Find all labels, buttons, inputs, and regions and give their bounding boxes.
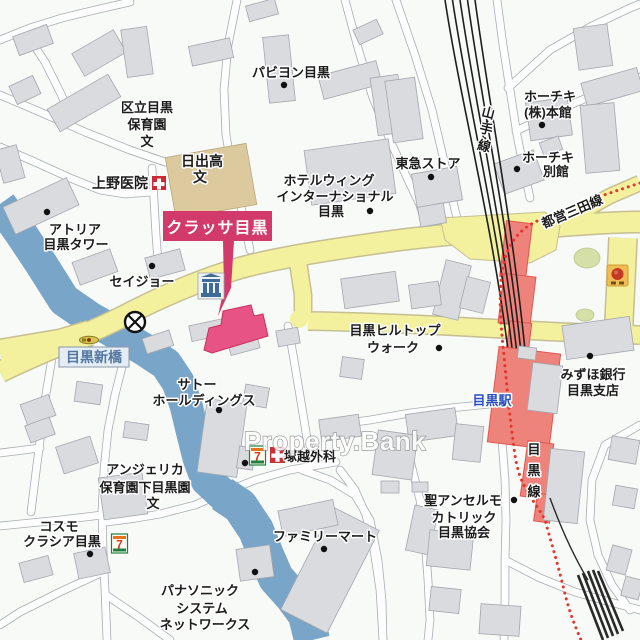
svg-text:目黒タワー: 目黒タワー xyxy=(43,237,108,252)
svg-text:目黒駅: 目黒駅 xyxy=(472,393,512,408)
svg-text:保育園下目黒園: 保育園下目黒園 xyxy=(98,480,190,495)
svg-text:アンジェリカ: アンジェリカ xyxy=(106,462,183,477)
svg-text:セイジョー: セイジョー xyxy=(109,274,174,289)
svg-text:クラシア目黒: クラシア目黒 xyxy=(23,534,101,549)
svg-text:日出高: 日出高 xyxy=(181,153,223,169)
svg-text:クラッサ目黒: クラッサ目黒 xyxy=(166,219,268,237)
svg-text:目黒協会: 目黒協会 xyxy=(438,525,491,540)
svg-text:目黒: 目黒 xyxy=(318,204,344,219)
svg-text:目黒支店: 目黒支店 xyxy=(567,383,619,398)
svg-text:黒: 黒 xyxy=(527,463,540,478)
svg-text:カトリック: カトリック xyxy=(431,510,496,525)
svg-text:パナソニック: パナソニック xyxy=(161,583,239,598)
svg-text:ファミリーマート: ファミリーマート xyxy=(273,529,377,544)
svg-text:区立目黒: 区立目黒 xyxy=(121,100,173,115)
svg-text:ウォーク: ウォーク xyxy=(367,340,419,355)
svg-text:目黒ヒルトップ: 目黒ヒルトップ xyxy=(349,323,441,338)
svg-text:聖アンセルモ: 聖アンセルモ xyxy=(424,493,501,508)
svg-text:パビヨン目黒: パビヨン目黒 xyxy=(252,65,330,80)
svg-text:目: 目 xyxy=(527,442,540,457)
svg-text:線: 線 xyxy=(527,484,541,499)
svg-text:Property.Bank: Property.Bank xyxy=(244,426,426,456)
svg-text:保育園: 保育園 xyxy=(126,117,166,132)
svg-text:アトリア: アトリア xyxy=(49,222,101,237)
svg-text:ホーチキ: ホーチキ xyxy=(522,150,574,165)
svg-text:ホーチキ: ホーチキ xyxy=(524,89,576,104)
svg-text:目黒新橋: 目黒新橋 xyxy=(66,349,123,365)
svg-text:文: 文 xyxy=(140,134,154,149)
svg-text:ネットワークス: ネットワークス xyxy=(160,617,251,632)
svg-text:東急ストア: 東急ストア xyxy=(395,156,460,171)
svg-text:サトー: サトー xyxy=(177,377,216,392)
svg-text:インターナショナル: インターナショナル xyxy=(276,189,393,204)
svg-text:ホールディングス: ホールディングス xyxy=(152,393,255,408)
svg-text:文: 文 xyxy=(146,496,160,511)
svg-text:システム: システム xyxy=(176,601,228,616)
svg-text:みずほ銀行: みずほ銀行 xyxy=(560,367,625,382)
svg-text:上野医院: 上野医院 xyxy=(92,175,148,191)
svg-text:別館: 別館 xyxy=(542,164,569,179)
svg-text:コスモ: コスモ xyxy=(39,519,78,534)
svg-text:(株)本館: (株)本館 xyxy=(524,105,572,120)
svg-text:文: 文 xyxy=(193,169,208,185)
svg-text:ホテルウィング: ホテルウィング xyxy=(283,173,374,188)
